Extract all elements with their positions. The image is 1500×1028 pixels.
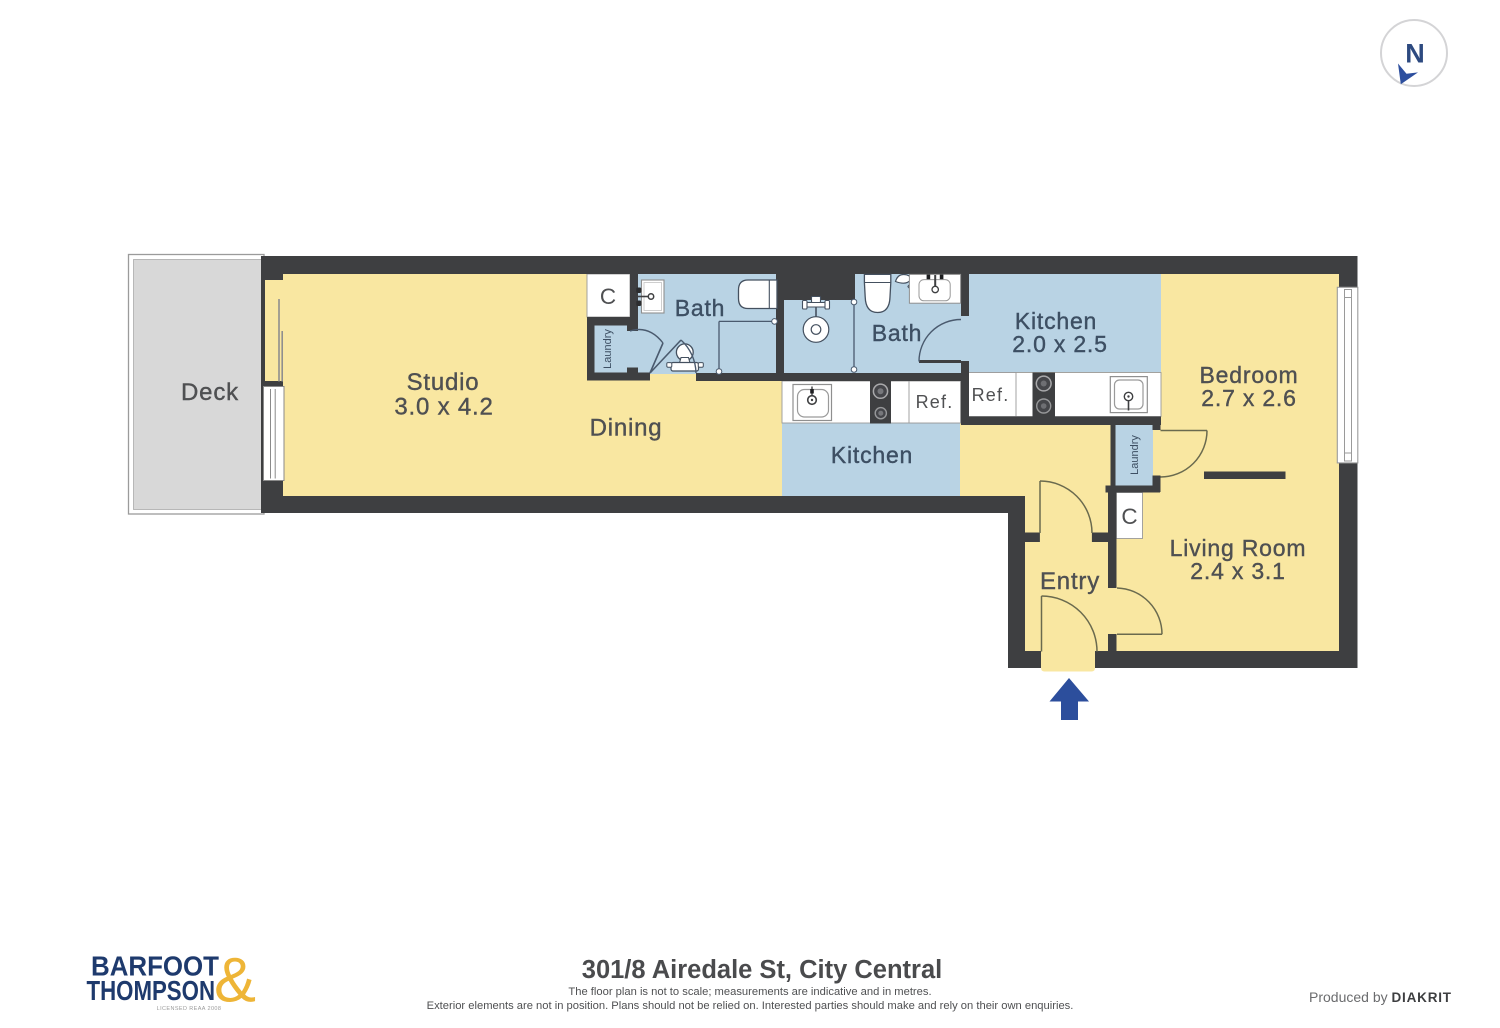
- svg-text:The floor plan is not to scale: The floor plan is not to scale; measurem…: [568, 986, 931, 998]
- svg-text:Ref.: Ref.: [916, 392, 954, 412]
- svg-text:N: N: [1405, 39, 1425, 69]
- svg-text:3.0 x 4.2: 3.0 x 4.2: [394, 394, 493, 421]
- svg-text:C: C: [600, 284, 616, 309]
- svg-text:C: C: [1121, 504, 1137, 529]
- svg-text:2.0 x 2.5: 2.0 x 2.5: [1012, 331, 1107, 357]
- svg-text:Exterior elements are not in p: Exterior elements are not in position. P…: [427, 1000, 1074, 1012]
- svg-text:2.7 x 2.6: 2.7 x 2.6: [1201, 385, 1296, 411]
- svg-text:301/8 Airedale St, City Centra: 301/8 Airedale St, City Central: [582, 956, 942, 984]
- svg-text:Deck: Deck: [181, 379, 239, 406]
- svg-text:&: &: [214, 946, 256, 1016]
- svg-text:Entry: Entry: [1040, 568, 1100, 595]
- svg-text:LICENSED REAA 2008: LICENSED REAA 2008: [157, 1006, 222, 1012]
- svg-text:Studio: Studio: [407, 369, 480, 396]
- svg-text:Laundry: Laundry: [1129, 435, 1141, 475]
- svg-text:Laundry: Laundry: [602, 329, 614, 369]
- svg-text:Bath: Bath: [675, 295, 726, 321]
- svg-text:Produced by DIAKRIT: Produced by DIAKRIT: [1309, 989, 1452, 1005]
- svg-text:Dining: Dining: [590, 415, 663, 442]
- svg-text:Bath: Bath: [872, 320, 923, 346]
- svg-text:Kitchen: Kitchen: [831, 442, 913, 468]
- svg-text:THOMPSON: THOMPSON: [87, 975, 216, 1006]
- svg-text:2.4 x 3.1: 2.4 x 3.1: [1190, 558, 1285, 584]
- svg-text:Ref.: Ref.: [972, 385, 1010, 405]
